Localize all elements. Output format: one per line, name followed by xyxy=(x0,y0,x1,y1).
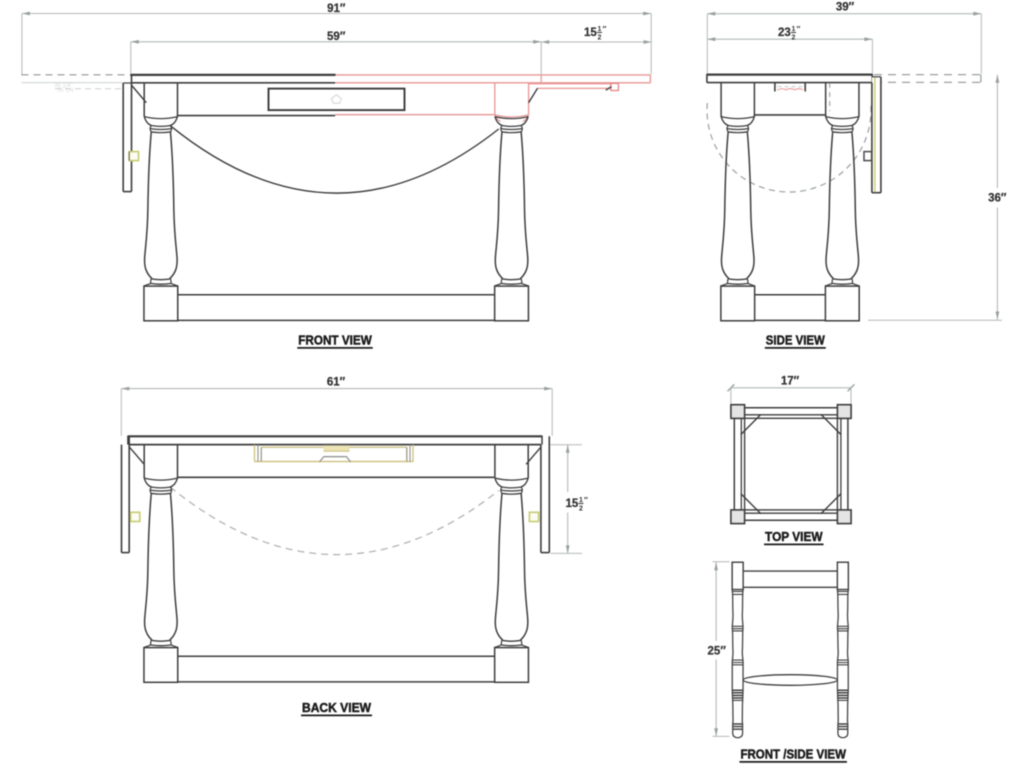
svg-text:BACK VIEW: BACK VIEW xyxy=(302,700,372,715)
svg-text:25″: 25″ xyxy=(708,646,727,658)
svg-text:″: ″ xyxy=(584,496,588,505)
svg-text:17″: 17″ xyxy=(781,376,800,388)
svg-text:SIDE VIEW: SIDE VIEW xyxy=(766,333,826,348)
svg-text:1: 1 xyxy=(792,26,796,33)
svg-text:1: 1 xyxy=(579,497,583,504)
svg-text:61″: 61″ xyxy=(327,377,346,389)
svg-text:TOP VIEW: TOP VIEW xyxy=(765,529,823,544)
svg-text:15: 15 xyxy=(584,27,597,39)
svg-text:59″: 59″ xyxy=(327,31,346,43)
svg-text:2: 2 xyxy=(598,35,602,42)
svg-text:FRONT /SIDE VIEW: FRONT /SIDE VIEW xyxy=(740,747,846,762)
svg-text:36″: 36″ xyxy=(988,193,1007,205)
svg-text:″: ″ xyxy=(797,25,801,34)
svg-text:2: 2 xyxy=(579,506,583,513)
svg-text:91″: 91″ xyxy=(327,3,346,15)
svg-text:36 1/4: 36 1/4 xyxy=(57,88,74,94)
svg-text:FRONT VIEW: FRONT VIEW xyxy=(298,333,372,348)
svg-text:2: 2 xyxy=(792,35,796,42)
svg-text:23: 23 xyxy=(778,27,791,39)
svg-text:39″: 39″ xyxy=(836,2,855,14)
svg-text:1: 1 xyxy=(598,26,602,33)
svg-text:″: ″ xyxy=(603,25,607,34)
svg-text:15: 15 xyxy=(566,498,579,510)
